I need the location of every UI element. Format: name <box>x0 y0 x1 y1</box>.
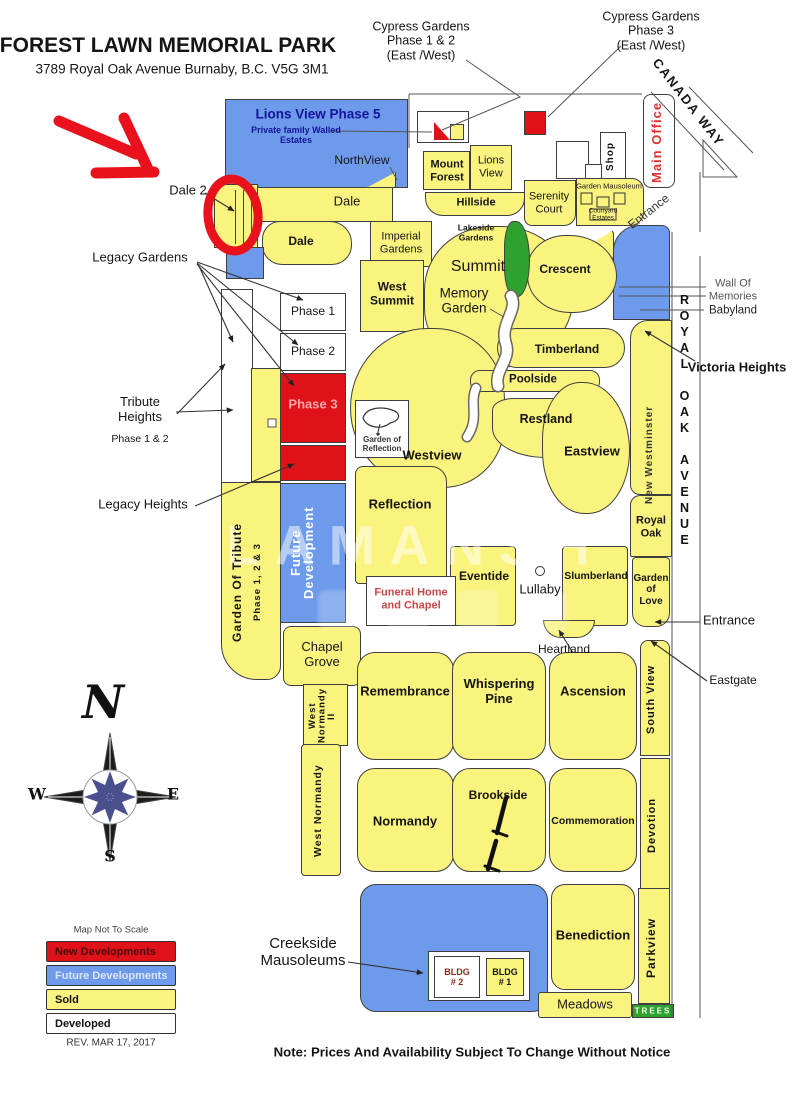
compass-east-letter: E <box>167 785 179 804</box>
watermark-glyph <box>528 592 568 632</box>
callout-tribute-heights: Tribute Heights <box>118 395 162 425</box>
region-wall-of-memories-blue <box>613 225 670 320</box>
region-lakeside-gardens <box>504 221 530 297</box>
label-garden-of-love: Garden of Love <box>633 573 668 607</box>
label-brookside: Brookside <box>469 789 528 803</box>
legend-scale-note: Map Not To Scale <box>74 926 149 937</box>
callout-entrance-east: Entrance <box>703 614 755 629</box>
callout-victoria-heights: Victoria Heights <box>688 361 787 376</box>
legend-future-developments-label: Future Developments <box>55 970 167 982</box>
building-yellow-piece <box>450 124 464 140</box>
compass-west-letter: W <box>28 785 46 804</box>
region-tribute-white-col <box>221 289 253 489</box>
label-lullaby: Lullaby <box>519 583 560 598</box>
label-reflection: Reflection <box>369 498 432 513</box>
label-westview: Westview <box>402 449 461 464</box>
label-remembrance: Remembrance <box>360 685 450 700</box>
region-ascension <box>549 652 637 760</box>
label-shop: Shop <box>606 138 616 176</box>
label-chapel-grove: Chapel Grove <box>301 640 342 670</box>
label-funeral-home: Funeral Home and Chapel <box>374 586 447 611</box>
label-garden-of-tribute-sub: Phase 1, 2 & 3 <box>253 500 263 664</box>
label-mount-forest: Mount Forest <box>430 158 464 183</box>
label-lakeside-gardens: Lakeside Gardens <box>458 223 494 242</box>
label-meadows: Meadows <box>557 998 613 1013</box>
callout-cypress-phase12: Cypress Gardens Phase 1 & 2 (East /West) <box>372 20 469 63</box>
label-commemoration: Commemoration <box>551 816 634 828</box>
legend-sold: Sold <box>46 989 176 1010</box>
compass-rose <box>44 733 176 861</box>
callout-cypress-phase3: Cypress Gardens Phase 3 (East /West) <box>602 10 699 53</box>
building-red-square <box>524 111 546 135</box>
note-text: Note: Prices And Availability Subject To… <box>274 1044 671 1059</box>
label-dale: Dale <box>288 235 313 249</box>
label-serenity-court: Serenity Court <box>529 190 569 215</box>
label-benediction: Benediction <box>556 929 630 944</box>
compass-north-letter: N <box>82 675 124 729</box>
label-hillside: Hillside <box>456 197 495 210</box>
compass-south-letter: S <box>104 847 116 866</box>
label-restland: Restland <box>520 412 573 426</box>
watermark: LAMANSH <box>226 513 604 578</box>
legend-developed: Developed <box>46 1013 176 1034</box>
region-legacy-heights-red <box>280 445 346 481</box>
legend-revision: REV. MAR 17, 2017 <box>66 1037 155 1048</box>
callout-legacy-heights: Legacy Heights <box>98 498 188 513</box>
label-ascension: Ascension <box>560 685 626 700</box>
label-phase2: Phase 2 <box>291 345 335 359</box>
label-south-view: South View <box>646 652 657 746</box>
label-courtyard-estates: Courtyard Estates <box>589 208 618 223</box>
callout-dale2: Dale 2 <box>169 184 207 199</box>
callout-babyland: Babyland <box>709 304 757 317</box>
page-title: FOREST LAWN MEMORIAL PARK <box>0 34 336 58</box>
label-future-development: Future Development <box>289 489 315 617</box>
callout-wall-of-memories: Wall Of Memories <box>709 277 757 302</box>
road-royal-oak-avenue: ROYAL OAK AVENUE <box>678 293 691 578</box>
label-whispering-pine: Whispering Pine <box>464 677 535 707</box>
label-phase3: Phase 3 <box>288 398 337 413</box>
label-dale-strip: Dale <box>334 195 361 210</box>
label-new-westminster: New Westminster <box>645 390 655 520</box>
label-northview: NorthView <box>334 154 389 168</box>
legend-sold-label: Sold <box>55 994 79 1006</box>
region-dale-strip <box>257 187 393 222</box>
label-eventide: Eventide <box>459 570 509 584</box>
label-garden-of-reflection: Garden of Reflection <box>363 435 402 453</box>
label-bldg2: BLDG # 2 <box>444 967 470 988</box>
label-devotion: Devotion <box>647 775 658 875</box>
label-lions-view-phase5: Lions View Phase 5 <box>255 106 380 121</box>
label-crescent: Crescent <box>539 263 590 277</box>
label-imperial-gardens: Imperial Gardens <box>380 230 422 255</box>
label-main-office: Main Office <box>650 98 663 186</box>
label-bldg1: BLDG # 1 <box>492 967 518 988</box>
callout-legacy-gardens: Legacy Gardens <box>92 251 187 266</box>
label-lions-view: Lions View <box>478 154 504 179</box>
label-normandy: Normandy <box>373 815 437 830</box>
region-brookside <box>452 768 546 872</box>
label-lions-view-phase5-sub: Private family Walled Estates <box>251 125 341 146</box>
region-remembrance <box>357 652 454 760</box>
label-parkview: Parkview <box>645 903 657 993</box>
legend-developed-label: Developed <box>55 1018 111 1030</box>
label-garden-of-tribute: Garden Of Tribute <box>231 492 243 672</box>
label-heartland: Heartland <box>538 643 590 657</box>
label-trees: TREES <box>635 1006 672 1015</box>
label-summit: Summit <box>451 258 505 276</box>
label-garden-mausoleum: Garden Mausoleum <box>576 183 642 192</box>
region-blue-below-dale2 <box>226 247 264 279</box>
legend-new-developments: New Developments <box>46 941 176 962</box>
callout-creekside: Creekside Mausoleums <box>260 935 345 969</box>
legend-future-developments: Future Developments <box>46 965 176 986</box>
label-west-normandy-ii: West Normandy II <box>308 688 337 744</box>
label-eastview: Eastview <box>564 445 620 460</box>
watermark-glyph <box>458 590 498 630</box>
watermark-glyph <box>318 590 358 630</box>
label-memory-garden: Memory Garden <box>440 286 489 317</box>
label-west-normandy: West Normandy <box>313 752 324 870</box>
region-tribute-yellow-strip <box>251 368 281 482</box>
map-canvas: LAMANSH FOREST LAWN MEMORIAL PARK 3789 R… <box>0 0 800 1103</box>
label-poolside: Poolside <box>509 373 557 386</box>
label-slumberland: Slumberland <box>564 571 628 583</box>
legend-new-developments-label: New Developments <box>55 946 156 958</box>
page-address: 3789 Royal Oak Avenue Burnaby, B.C. V5G … <box>36 61 329 76</box>
label-west-summit: West Summit <box>370 280 414 307</box>
callout-tribute-heights-sub: Phase 1 & 2 <box>111 434 168 446</box>
label-phase1: Phase 1 <box>291 305 335 319</box>
callout-eastgate: Eastgate <box>709 674 756 688</box>
label-timberland: Timberland <box>535 343 599 357</box>
label-royal-oak: Royal Oak <box>636 514 666 539</box>
dale2-plot-lines <box>228 190 255 244</box>
